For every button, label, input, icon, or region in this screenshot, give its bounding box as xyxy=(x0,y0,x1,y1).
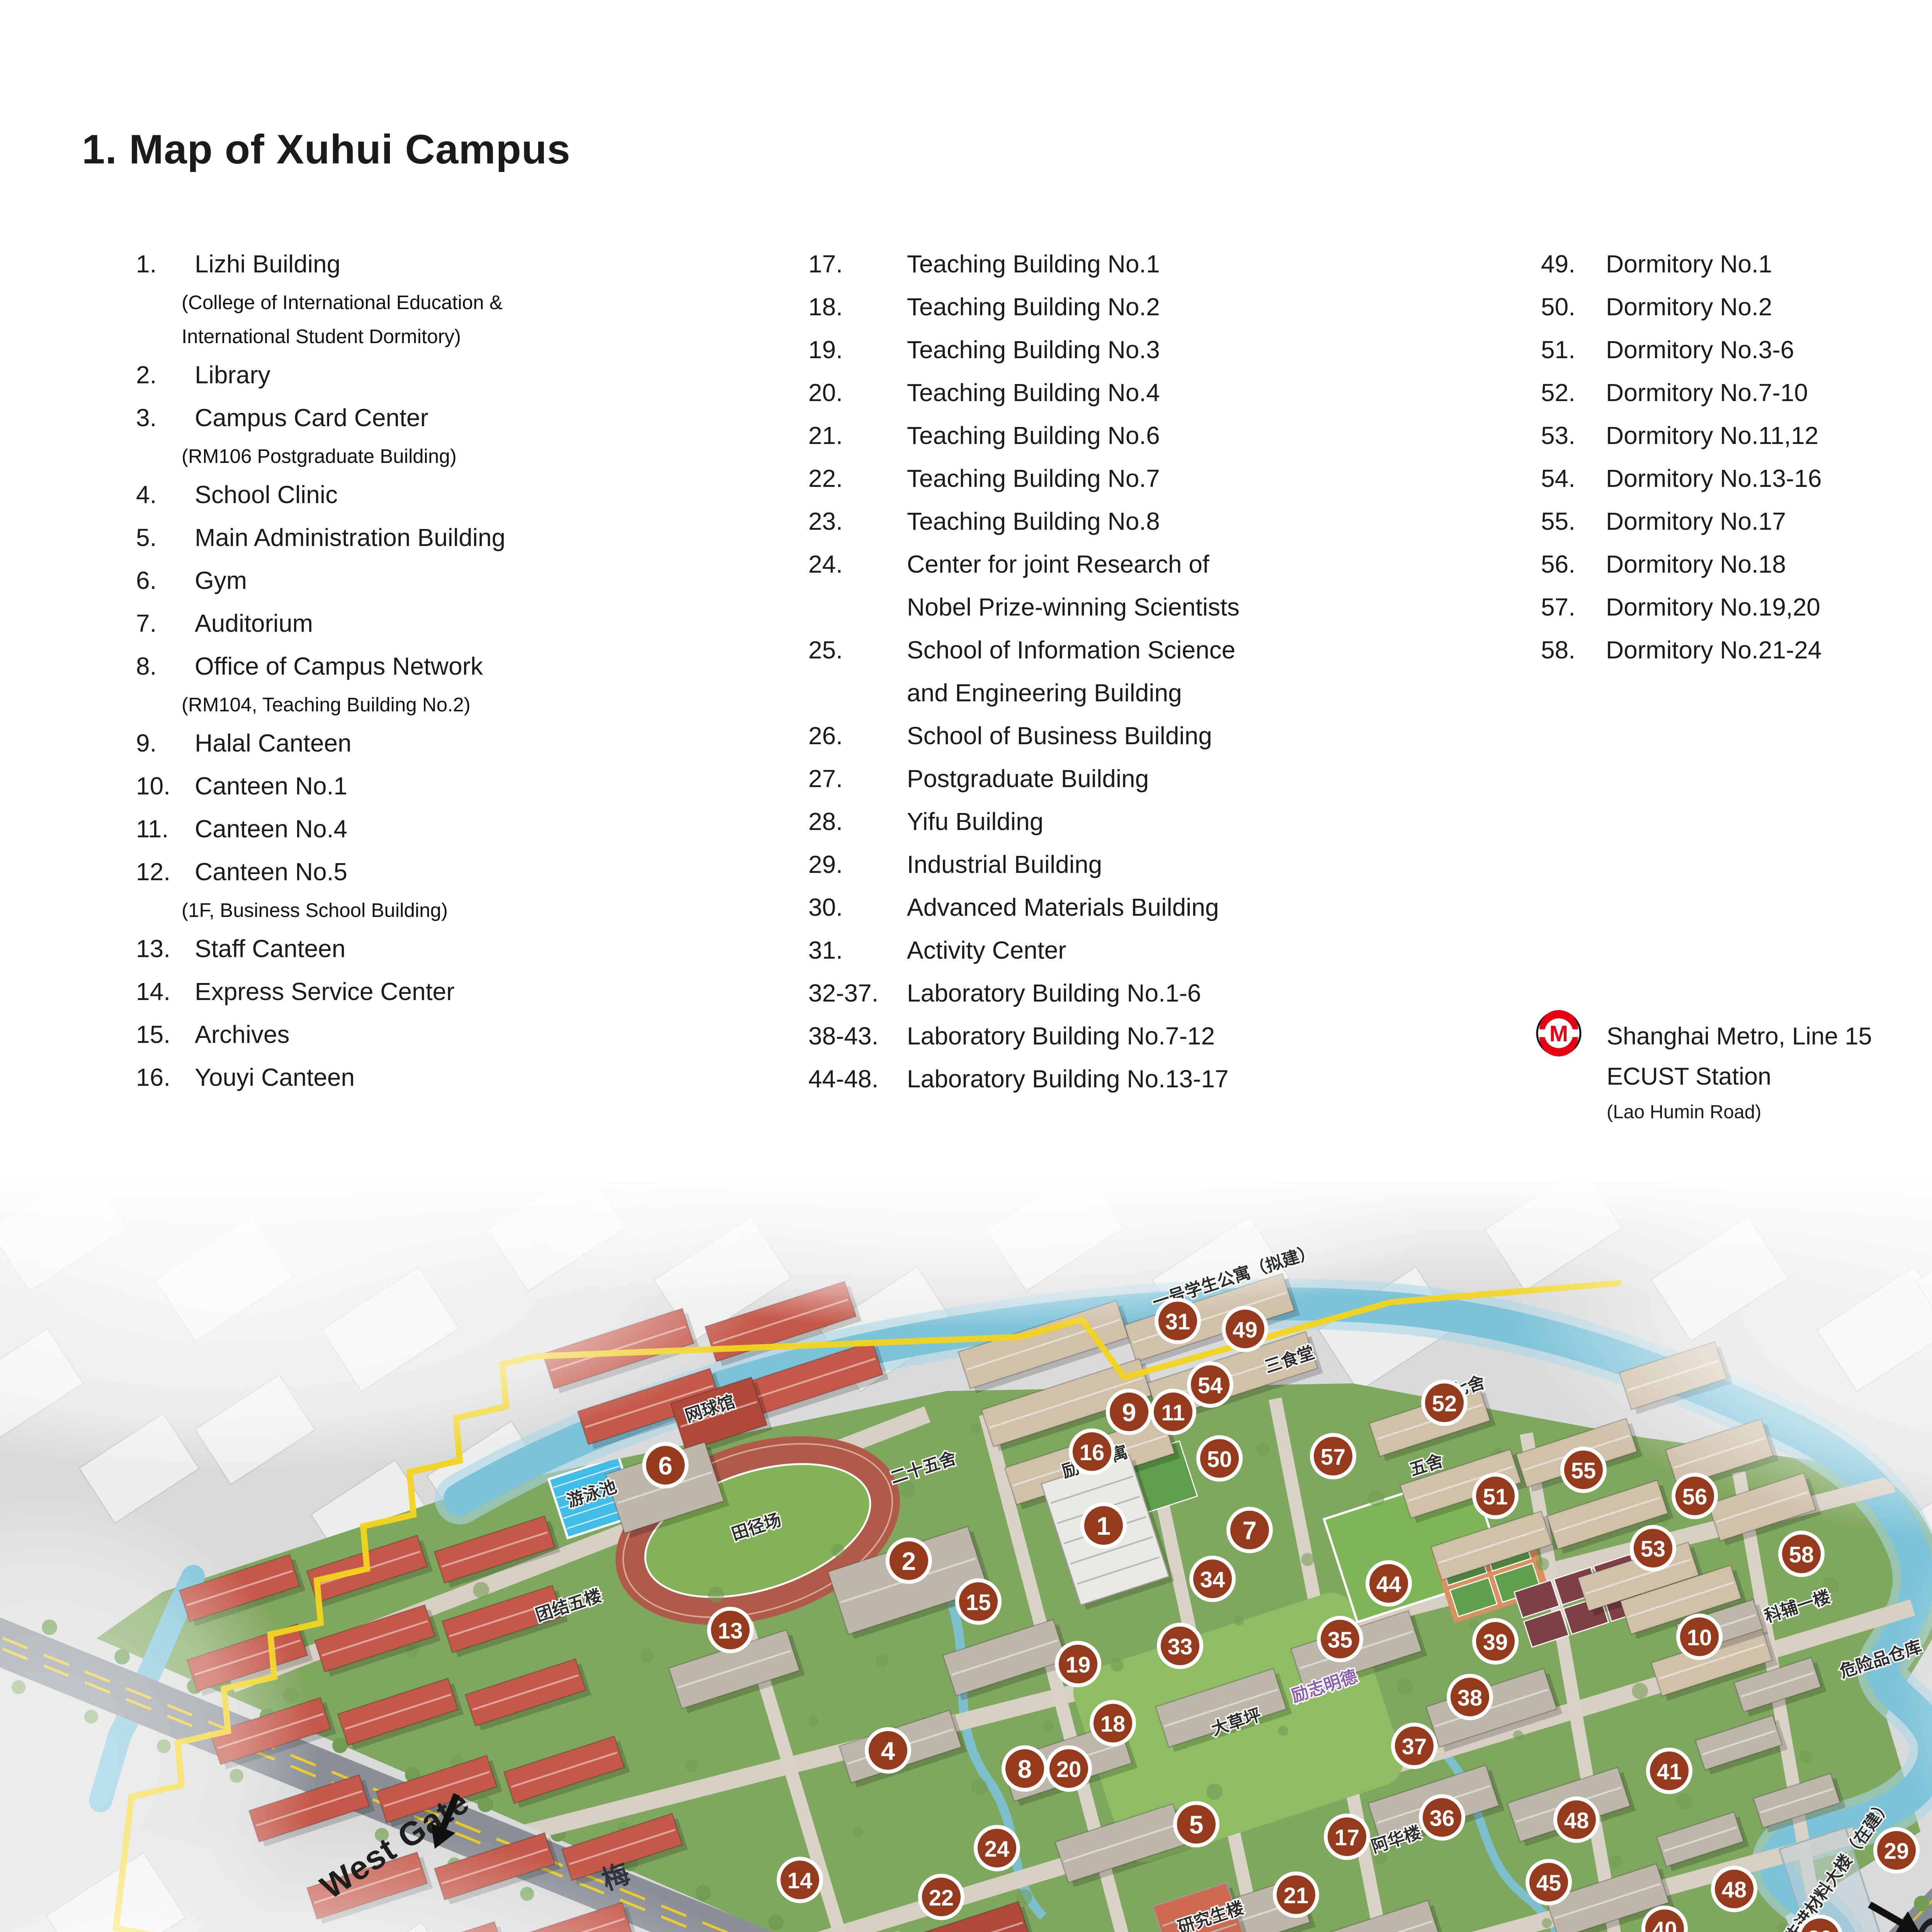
legend-item-number: 1. xyxy=(136,243,195,286)
legend-item-number: 19. xyxy=(808,328,907,371)
map-marker-8: 8 xyxy=(1003,1747,1046,1790)
tree xyxy=(853,1827,863,1837)
svg-text:15: 15 xyxy=(966,1590,991,1615)
legend-item-label: Canteen No.4 xyxy=(195,808,347,850)
tree xyxy=(970,1423,980,1433)
legend-item-note: (RM106 Postgraduate Building) xyxy=(182,439,816,473)
legend-item-number: 24. xyxy=(808,543,907,586)
svg-text:41: 41 xyxy=(1657,1759,1682,1784)
legend-item: 13.Staff Canteen xyxy=(136,927,816,970)
legend-item-label: Lizhi Building xyxy=(195,243,340,286)
legend-item-number: 31. xyxy=(808,929,907,972)
legend-item-label: Archives xyxy=(195,1013,289,1056)
legend-item-number: 30. xyxy=(808,886,907,929)
legend-item-label: Advanced Materials Building xyxy=(907,886,1219,929)
legend-item-label: Express Service Center xyxy=(195,970,454,1013)
map-marker-13: 13 xyxy=(709,1609,752,1651)
map-marker-48: 48 xyxy=(1555,1798,1598,1841)
legend-item-label: Teaching Building No.7 xyxy=(907,457,1160,500)
map-marker-9: 9 xyxy=(1108,1391,1150,1433)
map-marker-45: 45 xyxy=(1527,1861,1570,1903)
svg-text:31: 31 xyxy=(1165,1310,1190,1335)
legend-item: 56.Dormitory No.18 xyxy=(1541,543,1932,586)
svg-text:55: 55 xyxy=(1571,1458,1596,1483)
legend-item-label: Canteen No.5 xyxy=(195,850,347,893)
legend-item-number: 6. xyxy=(136,559,195,602)
legend-item-label: Office of Campus Network xyxy=(195,645,483,688)
campus-map-canvas: 一号学生公寓（拟建）田径场游泳池网球馆三食堂二十五舍励志公寓五舍七舍团结五楼大草… xyxy=(0,1182,1932,1932)
legend-item-number: 14. xyxy=(136,970,195,1013)
shanghai-metro-logo-icon: M xyxy=(1535,1009,1583,1057)
map-marker-52: 52 xyxy=(1423,1381,1466,1424)
legend-item-label: Teaching Building No.4 xyxy=(907,371,1160,414)
tree xyxy=(708,1587,724,1603)
legend-item: 29.Industrial Building xyxy=(808,843,1543,886)
legend-item: 28.Yifu Building xyxy=(808,800,1543,843)
legend-item-number: 44-48. xyxy=(808,1058,907,1100)
svg-text:30: 30 xyxy=(1808,1926,1833,1932)
legend-item-label: Teaching Building No.1 xyxy=(907,243,1160,286)
svg-text:2: 2 xyxy=(902,1547,916,1575)
legend-item: 51.Dormitory No.3-6 xyxy=(1541,328,1932,371)
legend-item-label: Yifu Building xyxy=(907,800,1043,843)
svg-text:19: 19 xyxy=(1066,1653,1091,1678)
legend-item-number: 27. xyxy=(808,757,907,800)
legend-item: 53.Dormitory No.11,12 xyxy=(1541,414,1932,457)
legend-item: 55.Dormitory No.17 xyxy=(1541,500,1932,543)
legend-item-number: 52. xyxy=(1541,371,1606,414)
tree xyxy=(1799,1750,1813,1763)
legend-item: 11.Canteen No.4 xyxy=(136,808,816,850)
legend-item-label: Dormitory No.21-24 xyxy=(1606,629,1821,672)
svg-text:49: 49 xyxy=(1233,1317,1258,1342)
map-marker-7: 7 xyxy=(1228,1509,1271,1551)
legend-item: 30.Advanced Materials Building xyxy=(808,886,1543,929)
svg-text:44: 44 xyxy=(1376,1572,1401,1597)
page-title: 1. Map of Xuhui Campus xyxy=(82,125,570,173)
map-marker-10: 10 xyxy=(1678,1616,1721,1658)
svg-text:58: 58 xyxy=(1789,1542,1814,1567)
legend-item-label: Activity Center xyxy=(907,929,1066,972)
legend-item-number: 18. xyxy=(808,286,907,328)
svg-text:57: 57 xyxy=(1321,1445,1346,1470)
map-marker-21: 21 xyxy=(1275,1873,1317,1916)
map-marker-18: 18 xyxy=(1092,1702,1134,1744)
legend-item: 6.Gym xyxy=(136,559,816,602)
map-marker-5: 5 xyxy=(1175,1803,1218,1845)
legend-column-1: 1.Lizhi Building(College of Internationa… xyxy=(136,243,816,1099)
legend-item-label: Laboratory Building No.1-6 xyxy=(907,972,1201,1015)
legend-item: 9.Halal Canteen xyxy=(136,722,816,765)
legend-item-number: 53. xyxy=(1541,414,1606,457)
legend-item-number: 21. xyxy=(808,414,907,457)
svg-text:1: 1 xyxy=(1097,1512,1111,1540)
legend-item-number: 26. xyxy=(808,714,907,757)
svg-text:18: 18 xyxy=(1100,1711,1126,1736)
tree xyxy=(641,1649,654,1662)
legend-item: 38-43.Laboratory Building No.7-12 xyxy=(808,1015,1543,1058)
legend-item-label: Halal Canteen xyxy=(195,722,352,765)
legend-item: 44-48.Laboratory Building No.13-17 xyxy=(808,1058,1543,1100)
legend-item-number: 15. xyxy=(136,1013,195,1056)
legend-item: 25.School of Information Scienceand Engi… xyxy=(808,629,1543,714)
map-marker-31: 31 xyxy=(1156,1300,1199,1342)
legend-item: 8.Office of Campus Network xyxy=(136,645,816,688)
legend-item-label: Staff Canteen xyxy=(195,927,345,970)
legend-item-label: Dormitory No.18 xyxy=(1606,543,1786,586)
legend-item-number: 28. xyxy=(808,800,907,843)
legend-item-number: 49. xyxy=(1541,243,1606,286)
metro-note: M Shanghai Metro, Line 15 ECUST Station … xyxy=(1535,1009,1872,1128)
map-marker-36: 36 xyxy=(1421,1796,1463,1838)
legend-item: 15.Archives xyxy=(136,1013,816,1056)
map-marker-50: 50 xyxy=(1198,1437,1241,1480)
legend-item-label: Gym xyxy=(195,559,247,602)
tree xyxy=(1676,1793,1692,1809)
map-marker-38: 38 xyxy=(1449,1676,1491,1718)
legend-item-number: 22. xyxy=(808,457,907,500)
legend-item-label: Dormitory No.3-6 xyxy=(1606,328,1794,371)
svg-text:56: 56 xyxy=(1682,1484,1708,1509)
legend-item: 49.Dormitory No.1 xyxy=(1541,243,1932,286)
map-marker-58: 58 xyxy=(1780,1532,1823,1575)
tree xyxy=(1632,1683,1648,1699)
legend-item: 3.Campus Card Center xyxy=(136,396,816,439)
map-marker-14: 14 xyxy=(779,1859,821,1901)
legend-column-2: 17.Teaching Building No.118.Teaching Bui… xyxy=(808,243,1543,1100)
svg-text:38: 38 xyxy=(1458,1685,1483,1711)
legend-item-number: 9. xyxy=(136,722,195,765)
map-marker-54: 54 xyxy=(1189,1363,1231,1406)
legend-item: 21.Teaching Building No.6 xyxy=(808,414,1543,457)
tree xyxy=(1278,1726,1288,1736)
legend-item-note: (College of International Education & xyxy=(182,286,816,320)
legend-item-number: 50. xyxy=(1541,286,1606,328)
map-marker-4: 4 xyxy=(867,1729,909,1772)
tree xyxy=(1234,1616,1244,1626)
legend-item: 12.Canteen No.5 xyxy=(136,850,816,893)
map-marker-16: 16 xyxy=(1071,1430,1113,1473)
legend-column-3: 49.Dormitory No.150.Dormitory No.251.Dor… xyxy=(1541,243,1932,672)
svg-text:24: 24 xyxy=(985,1837,1010,1862)
map-marker-37: 37 xyxy=(1393,1725,1435,1767)
legend-item: 14.Express Service Center xyxy=(136,970,816,1013)
legend-item-number: 17. xyxy=(808,243,907,286)
svg-text:22: 22 xyxy=(929,1885,954,1910)
legend-item-label: Teaching Building No.6 xyxy=(907,414,1160,457)
map-marker-35: 35 xyxy=(1319,1618,1361,1660)
tree xyxy=(1397,1678,1413,1694)
legend-item: 7.Auditorium xyxy=(136,602,816,645)
svg-text:16: 16 xyxy=(1080,1440,1105,1465)
legend-item: 52.Dormitory No.7-10 xyxy=(1541,371,1932,414)
svg-text:11: 11 xyxy=(1161,1400,1185,1425)
legend-item: 5.Main Administration Building xyxy=(136,516,816,559)
svg-text:13: 13 xyxy=(718,1618,743,1643)
legend-item-label: Dormitory No.1 xyxy=(1606,243,1772,286)
tree xyxy=(971,1779,988,1795)
svg-text:37: 37 xyxy=(1402,1734,1427,1759)
map-marker-15: 15 xyxy=(957,1580,1000,1623)
svg-text:29: 29 xyxy=(1884,1839,1909,1864)
legend-item-number: 58. xyxy=(1541,629,1606,672)
map-marker-48: 48 xyxy=(1713,1868,1755,1910)
svg-text:35: 35 xyxy=(1328,1628,1353,1653)
svg-text:33: 33 xyxy=(1168,1634,1193,1660)
svg-text:M: M xyxy=(1549,1021,1568,1046)
tree xyxy=(876,1654,889,1667)
legend-item-label: Teaching Building No.8 xyxy=(907,500,1160,543)
legend-item-number: 7. xyxy=(136,602,195,645)
legend-item: 20.Teaching Building No.4 xyxy=(808,371,1543,414)
tree xyxy=(1542,1918,1552,1928)
legend-item-number: 25. xyxy=(808,629,907,672)
legend-item-number: 12. xyxy=(136,850,195,893)
map-marker-55: 55 xyxy=(1562,1449,1605,1491)
legend-item-label: Dormitory No.17 xyxy=(1606,500,1786,543)
map-marker-1: 1 xyxy=(1082,1504,1125,1547)
legend-item-number: 55. xyxy=(1541,500,1606,543)
legend-item-number: 51. xyxy=(1541,328,1606,371)
map-marker-17: 17 xyxy=(1326,1815,1368,1858)
map-marker-11: 11 xyxy=(1152,1391,1194,1433)
tree xyxy=(1536,1558,1549,1571)
map-marker-57: 57 xyxy=(1312,1435,1354,1478)
legend-item-label: School of Business Building xyxy=(907,714,1212,757)
legend-item-label: Center for joint Research ofNobel Prize-… xyxy=(907,543,1240,629)
legend-item-label: Dormitory No.2 xyxy=(1606,286,1772,328)
legend-item-label: Laboratory Building No.13-17 xyxy=(907,1058,1229,1100)
svg-text:36: 36 xyxy=(1430,1806,1455,1831)
tree xyxy=(1609,1855,1622,1869)
legend-item: 19.Teaching Building No.3 xyxy=(808,328,1543,371)
tree xyxy=(808,1716,818,1726)
legend-item-number: 8. xyxy=(136,645,195,688)
map-marker-2: 2 xyxy=(888,1539,930,1582)
svg-text:10: 10 xyxy=(1687,1625,1712,1650)
legend-item: 10.Canteen No.1 xyxy=(136,765,816,808)
legend-item: 26.School of Business Building xyxy=(808,714,1543,757)
tree xyxy=(1368,1490,1384,1507)
legend-item-label: Dormitory No.19,20 xyxy=(1606,586,1820,629)
svg-text:48: 48 xyxy=(1722,1878,1747,1903)
legend-item: 16.Youyi Canteen xyxy=(136,1056,816,1099)
legend-item-number: 32-37. xyxy=(808,972,907,1015)
svg-text:53: 53 xyxy=(1641,1537,1666,1562)
tree xyxy=(685,1759,698,1772)
legend-item-note: International Student Dormitory) xyxy=(182,320,816,354)
legend-item-label: School Clinic xyxy=(195,473,338,516)
svg-text:20: 20 xyxy=(1056,1757,1082,1782)
legend-item-label: Dormitory No.7-10 xyxy=(1606,371,1808,414)
tree xyxy=(1301,1553,1314,1566)
legend-item-label: Postgraduate Building xyxy=(907,757,1149,800)
map-marker-24: 24 xyxy=(976,1827,1018,1869)
map-marker-39: 39 xyxy=(1474,1620,1517,1663)
legend-item: 4.School Clinic xyxy=(136,473,816,516)
map-marker-34: 34 xyxy=(1191,1558,1234,1600)
tree xyxy=(768,1915,784,1930)
legend-item-label: School of Information Scienceand Enginee… xyxy=(907,629,1235,714)
legend-item: 31.Activity Center xyxy=(808,929,1543,972)
svg-text:17: 17 xyxy=(1335,1825,1360,1850)
svg-text:9: 9 xyxy=(1122,1398,1136,1427)
svg-text:6: 6 xyxy=(658,1451,673,1480)
legend-item-number: 10. xyxy=(136,765,195,808)
legend-item-number: 38-43. xyxy=(808,1015,907,1058)
legend-item-number: 29. xyxy=(808,843,907,886)
svg-text:8: 8 xyxy=(1018,1755,1032,1783)
legend-item-label: Main Administration Building xyxy=(195,516,505,559)
legend-item: 24.Center for joint Research ofNobel Pri… xyxy=(808,543,1543,629)
tree xyxy=(831,1544,844,1557)
metro-note-line2: ECUST Station xyxy=(1607,1056,1872,1097)
map-marker-29: 29 xyxy=(1875,1829,1918,1872)
legend-item: 50.Dormitory No.2 xyxy=(1541,286,1932,328)
tree xyxy=(1043,1721,1053,1731)
map-marker-49: 49 xyxy=(1224,1308,1266,1350)
tree xyxy=(1257,1443,1270,1456)
legend-item-label: Library xyxy=(195,354,270,396)
map-marker-33: 33 xyxy=(1159,1625,1201,1667)
svg-text:7: 7 xyxy=(1243,1516,1257,1545)
svg-text:40: 40 xyxy=(1652,1917,1677,1932)
svg-text:48: 48 xyxy=(1564,1808,1589,1833)
legend-item-label: Teaching Building No.3 xyxy=(907,328,1160,371)
svg-text:45: 45 xyxy=(1536,1871,1561,1896)
legend-item-number: 11. xyxy=(136,808,195,850)
svg-text:4: 4 xyxy=(881,1736,895,1765)
legend-item-label: Industrial Building xyxy=(907,843,1102,886)
map-marker-41: 41 xyxy=(1648,1750,1690,1792)
svg-text:5: 5 xyxy=(1189,1810,1204,1839)
legend-item-number: 20. xyxy=(808,371,907,414)
svg-text:52: 52 xyxy=(1432,1391,1457,1416)
legend-item-label: Auditorium xyxy=(195,602,313,645)
tree xyxy=(1513,1730,1523,1740)
legend-item-number: 5. xyxy=(136,516,195,559)
map-marker-6: 6 xyxy=(644,1444,687,1486)
legend-item: 18.Teaching Building No.2 xyxy=(808,286,1543,328)
map-marker-20: 20 xyxy=(1048,1747,1090,1790)
tree xyxy=(1111,1658,1124,1672)
svg-text:34: 34 xyxy=(1200,1567,1225,1592)
svg-text:51: 51 xyxy=(1483,1484,1508,1509)
legend-item-note: (RM104, Teaching Building No.2) xyxy=(182,688,816,722)
legend-item: 27.Postgraduate Building xyxy=(808,757,1543,800)
legend-item-label: Canteen No.1 xyxy=(195,765,347,808)
legend-item: 1.Lizhi Building xyxy=(136,243,816,286)
legend-item-number: 2. xyxy=(136,354,195,396)
legend-item: 54.Dormitory No.13-16 xyxy=(1541,457,1932,500)
svg-text:14: 14 xyxy=(787,1868,813,1893)
map-marker-40: 40 xyxy=(1643,1908,1686,1932)
legend-item-label: Youyi Canteen xyxy=(195,1056,355,1099)
map-marker-53: 53 xyxy=(1632,1527,1674,1570)
legend-item-number: 23. xyxy=(808,500,907,543)
legend-item-number: 16. xyxy=(136,1056,195,1099)
legend-item-number: 4. xyxy=(136,473,195,516)
tree xyxy=(478,1797,493,1812)
legend-item: 17.Teaching Building No.1 xyxy=(808,243,1543,286)
legend-item-number: 54. xyxy=(1541,457,1606,500)
legend-item: 22.Teaching Building No.7 xyxy=(808,457,1543,500)
svg-text:21: 21 xyxy=(1284,1883,1309,1908)
legend-item: 57.Dormitory No.19,20 xyxy=(1541,586,1932,629)
tree xyxy=(1206,1784,1223,1800)
svg-text:39: 39 xyxy=(1483,1630,1508,1655)
map-marker-19: 19 xyxy=(1057,1643,1099,1685)
legend-item: 58.Dormitory No.21-24 xyxy=(1541,629,1932,672)
legend-item-label: Dormitory No.11,12 xyxy=(1606,414,1818,457)
tree xyxy=(332,1738,348,1753)
legend-item-label: Dormitory No.13-16 xyxy=(1606,457,1821,500)
legend-item-number: 57. xyxy=(1541,586,1606,629)
metro-note-line1: Shanghai Metro, Line 15 xyxy=(1607,1016,1872,1056)
tree xyxy=(696,1885,711,1901)
svg-text:50: 50 xyxy=(1207,1447,1232,1472)
legend-item-note: (1F, Business School Building) xyxy=(182,893,816,927)
tree xyxy=(473,1582,489,1598)
map-marker-22: 22 xyxy=(920,1876,963,1918)
metro-note-line3: (Lao Humin Road) xyxy=(1607,1097,1872,1128)
map-marker-51: 51 xyxy=(1474,1475,1517,1517)
campus-map: 一号学生公寓（拟建）田径场游泳池网球馆三食堂二十五舍励志公寓五舍七舍团结五楼大草… xyxy=(0,1182,1932,1932)
legend-item-number: 56. xyxy=(1541,543,1606,586)
legend-item-number: 3. xyxy=(136,396,195,439)
legend-item: 2.Library xyxy=(136,354,816,396)
map-marker-44: 44 xyxy=(1367,1562,1410,1605)
map-marker-56: 56 xyxy=(1673,1475,1716,1517)
svg-text:54: 54 xyxy=(1198,1373,1223,1398)
legend-item-label: Laboratory Building No.7-12 xyxy=(907,1015,1215,1058)
legend-item-label: Teaching Building No.2 xyxy=(907,286,1160,328)
legend-item: 23.Teaching Building No.8 xyxy=(808,500,1543,543)
legend-item-label: Campus Card Center xyxy=(195,396,429,439)
legend-item: 32-37.Laboratory Building No.1-6 xyxy=(808,972,1543,1015)
legend-item-number: 13. xyxy=(136,927,195,970)
